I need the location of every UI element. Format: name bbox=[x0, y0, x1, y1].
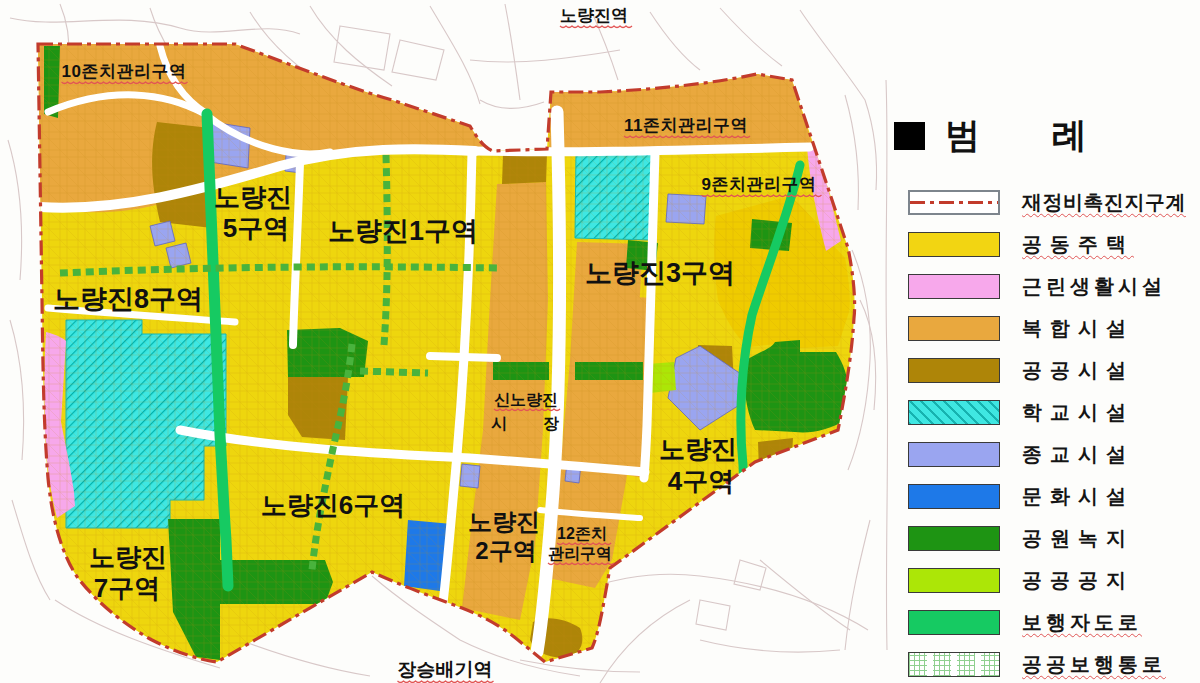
legend-item-passage: 공공보행통로 bbox=[908, 651, 1200, 678]
legend-item-neighborhood: 근린생활시설 bbox=[908, 273, 1200, 300]
legend-swatch-mixed bbox=[908, 316, 1000, 341]
spellcheck-squiggle bbox=[398, 681, 494, 683]
zone-4-label-line1: 노량진 bbox=[659, 434, 737, 464]
legend-item-label: 공공보행통로 bbox=[1022, 651, 1166, 678]
legend-swatch-neighborhood bbox=[908, 274, 1000, 299]
zone-8-label: 노량진8구역 bbox=[53, 284, 203, 314]
mgmt-zone-9-label: 9존치관리구역 bbox=[702, 175, 817, 194]
mgmt-zone-11-label: 11존치관리구역 bbox=[624, 116, 748, 135]
station-label-noryangjin: 노량진역 bbox=[560, 6, 628, 25]
legend-swatch-park bbox=[908, 526, 1000, 551]
mgmt-zone-12-label-line1: 12존치 bbox=[557, 525, 607, 542]
legend-panel: 범 례 재정비촉진지구계공동주택근린생활시설복합시설공공시설학교시설종교시설문화… bbox=[880, 0, 1200, 683]
legend-item-label: 공공시설 bbox=[1022, 357, 1134, 384]
zone-7-label-line1: 노량진 bbox=[89, 542, 167, 572]
legend-item-school: 학교시설 bbox=[908, 399, 1200, 426]
legend-swatch-housing bbox=[908, 232, 1000, 257]
legend-swatch-pedestrian bbox=[908, 610, 1000, 635]
legend-item-park: 공원녹지 bbox=[908, 525, 1200, 552]
legend-item-label: 보행자도로 bbox=[1022, 609, 1142, 636]
mgmt-zone-12-label-line2: 관리구역 bbox=[548, 545, 612, 562]
zone-2-label-line1: 노량진 bbox=[468, 508, 540, 535]
legend-item-boundary: 재정비촉진지구계 bbox=[908, 189, 1200, 216]
legend-swatch-school bbox=[908, 400, 1000, 425]
zone-2-label-line2: 2구역 bbox=[475, 537, 536, 564]
legend-item-religious: 종교시설 bbox=[908, 441, 1200, 468]
legend-item-pedestrian: 보행자도로 bbox=[908, 609, 1200, 636]
legend-swatch-boundary bbox=[908, 190, 1000, 215]
legend-item-label: 학교시설 bbox=[1022, 399, 1134, 426]
legend-item-label: 문화시설 bbox=[1022, 483, 1134, 510]
legend-swatch-religious bbox=[908, 442, 1000, 467]
zone-7-label-line2: 7구역 bbox=[94, 573, 160, 603]
station-label-jangseungbaegi: 장승배기역 bbox=[398, 659, 493, 680]
legend-swatch-public bbox=[908, 358, 1000, 383]
legend-item-label: 공원녹지 bbox=[1022, 525, 1134, 552]
boundary-dashdot-line bbox=[910, 201, 998, 204]
legend-item-public: 공공시설 bbox=[908, 357, 1200, 384]
market-label-si: 시 bbox=[491, 415, 507, 432]
market-label-line1: 신노량진 bbox=[494, 391, 558, 408]
legend-swatch-open bbox=[908, 568, 1000, 593]
legend-item-housing: 공동주택 bbox=[908, 231, 1200, 258]
legend-item-label: 복합시설 bbox=[1022, 315, 1134, 342]
legend-item-label: 재정비촉진지구계 bbox=[1022, 189, 1186, 216]
legend-items: 재정비촉진지구계공동주택근린생활시설복합시설공공시설학교시설종교시설문화시설공원… bbox=[908, 189, 1200, 683]
zone-3-label: 노량진3구역 bbox=[585, 258, 735, 288]
legend-item-label: 종교시설 bbox=[1022, 441, 1134, 468]
mgmt-zone-10-label: 10존치관리구역 bbox=[62, 62, 187, 81]
legend-title-text: 범 례 bbox=[945, 112, 1097, 159]
legend-swatch-passage bbox=[908, 652, 1000, 677]
zone-1-label: 노량진1구역 bbox=[328, 216, 478, 246]
legend-item-label: 공동주택 bbox=[1022, 231, 1134, 258]
legend-title: 범 례 bbox=[894, 112, 1097, 159]
zone-6-label: 노량진6구역 bbox=[261, 490, 405, 520]
spellcheck-squiggle bbox=[560, 26, 632, 28]
legend-item-cultural: 문화시설 bbox=[908, 483, 1200, 510]
zone-5-label-line2: 5구역 bbox=[223, 213, 289, 243]
legend-title-square-icon bbox=[894, 122, 925, 150]
zone-5-label-line1: 노량진 bbox=[214, 182, 292, 212]
legend-item-open: 공공공지 bbox=[908, 567, 1200, 594]
legend-item-label: 근린생활시설 bbox=[1022, 273, 1166, 300]
market-label-jang: 장 bbox=[543, 415, 559, 432]
planning-map-page: { "legend": { "title": "범 례", "items": [… bbox=[0, 0, 1200, 683]
legend-item-label: 공공공지 bbox=[1022, 567, 1134, 594]
legend-item-mixed: 복합시설 bbox=[908, 315, 1200, 342]
legend-swatch-cultural bbox=[908, 484, 1000, 509]
zone-4-label-line2: 4구역 bbox=[668, 466, 734, 496]
